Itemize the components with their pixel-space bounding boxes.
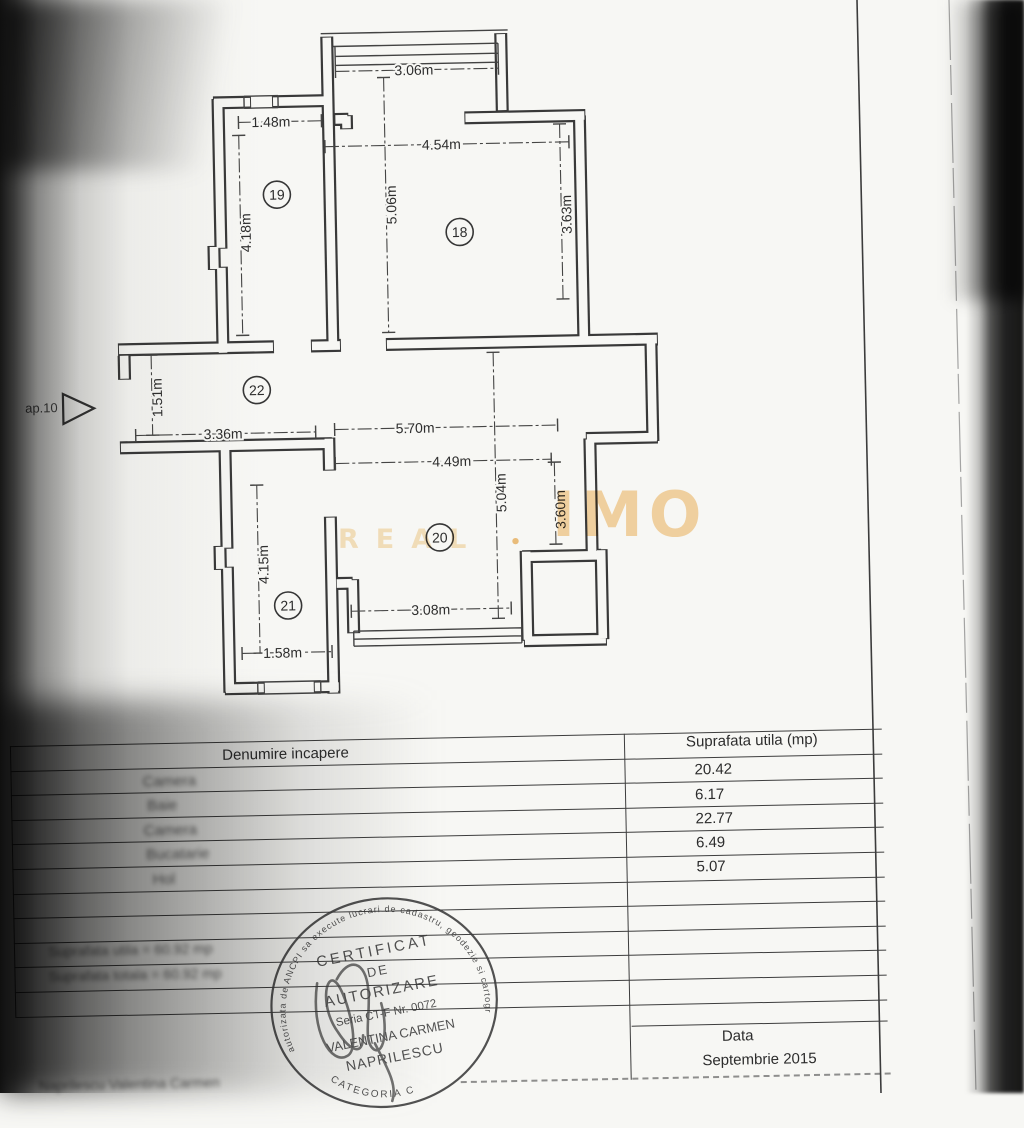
room-21-label: 21 — [280, 597, 296, 613]
entry-arrow-icon — [63, 393, 95, 424]
room-name: Camera — [143, 821, 197, 839]
signature-note: Naprilescu Valentina Carmen — [39, 1074, 220, 1094]
entry-marker: ap.10 — [25, 393, 95, 424]
table-header-area: Suprafata utila (mp) — [686, 731, 818, 751]
table-bottom-edge — [461, 1073, 891, 1084]
scanned-sheet: 3.06m 1.48m 4.54m 5.06m 4.18m 3.63m 1.51… — [0, 0, 1024, 1103]
table-line — [11, 803, 883, 822]
room-19-label: 19 — [269, 186, 285, 202]
stamp-outer-ring — [253, 888, 515, 1123]
room-area: 6.49 — [696, 834, 726, 852]
date-label: Data — [722, 1027, 754, 1045]
room-18-label: 18 — [452, 224, 468, 240]
entry-apartment-label: ap.10 — [25, 400, 58, 416]
dim-4-15: 4.15m — [255, 545, 272, 584]
certification-stamp: autorizata de ANCPI sa execute lucrari d… — [252, 888, 517, 1123]
dim-5-04: 5.04m — [493, 473, 510, 512]
room-numbers: 18 19 20 21 22 — [239, 177, 481, 620]
stamp-line-de: DE — [366, 961, 391, 980]
dim-5-70: 5.70m — [395, 420, 434, 437]
dim-3-08: 3.08m — [411, 601, 450, 618]
date-value: Septembrie 2015 — [702, 1050, 817, 1069]
summary-totala: Suprafata totala = 60.92 mp — [48, 965, 221, 984]
dimension-lines — [128, 67, 579, 656]
dim-3-60: 3.60m — [552, 490, 569, 529]
dim-4-54: 4.54m — [422, 136, 461, 153]
room-name: Baie — [147, 797, 177, 815]
room-area: 5.07 — [696, 858, 726, 876]
dim-1-58: 1.58m — [263, 644, 302, 661]
dim-3-63: 3.63m — [558, 195, 575, 234]
dim-3-06: 3.06m — [394, 61, 433, 78]
scanned-floorplan-document: { "plan": { "dims": ["3.06m","1.48m","4.… — [0, 0, 1024, 1093]
table-line — [10, 754, 882, 773]
window-lines — [243, 30, 523, 694]
room-area: 6.17 — [695, 786, 725, 804]
table-line-right — [632, 1021, 888, 1027]
walls-inner — [113, 31, 664, 697]
dim-1-51: 1.51m — [149, 378, 166, 417]
dim-1-48: 1.48m — [251, 113, 290, 130]
dim-5-06: 5.06m — [383, 185, 400, 224]
table-left-border — [10, 746, 17, 1017]
table-line — [12, 852, 884, 871]
dim-4-49: 4.49m — [432, 453, 471, 470]
room-name: Camera — [142, 772, 196, 790]
room-name: Bucatarie — [146, 845, 210, 863]
room-22-label: 22 — [249, 382, 265, 398]
summary-utila: Suprafata utila = 60.92 mp — [48, 940, 213, 959]
dimension-labels: 3.06m 1.48m 4.54m 5.06m 4.18m 3.63m 1.51… — [142, 59, 583, 663]
dim-4-18: 4.18m — [237, 213, 254, 252]
room-name: Hol — [152, 871, 175, 888]
room-area: 20.42 — [694, 761, 732, 779]
dim-3-36: 3.36m — [204, 425, 243, 442]
table-header-room: Denumire incapere — [222, 744, 349, 764]
room-20-label: 20 — [432, 529, 448, 545]
room-area: 22.77 — [695, 810, 733, 828]
floor-plan-drawing: 3.06m 1.48m 4.54m 5.06m 4.18m 3.63m 1.51… — [0, 0, 1024, 740]
